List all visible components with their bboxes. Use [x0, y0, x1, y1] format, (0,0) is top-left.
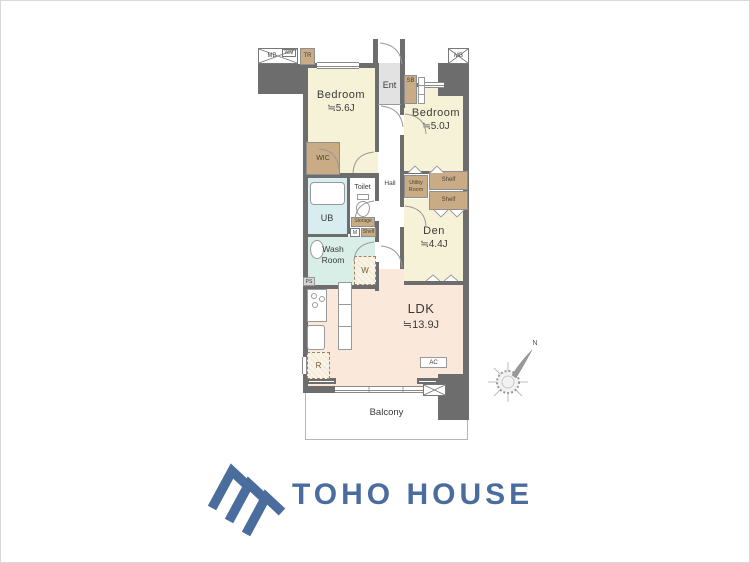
compass-needle	[512, 350, 532, 378]
door-arc-washroom	[354, 242, 374, 261]
floorplan-image: MB WM TR MB SB WIC Utility Room Shelf Sh…	[0, 0, 750, 563]
window-ticks	[369, 386, 403, 393]
toho-house-logo-text: TOHO HOUSE	[292, 478, 533, 512]
logo-chevron-3	[246, 497, 282, 534]
door-arc-den	[405, 206, 426, 226]
compass-icon	[488, 350, 532, 402]
door-arc-wic	[319, 149, 339, 169]
door-arc-bedroom2	[405, 114, 426, 134]
door-arc-bedroom1	[353, 152, 374, 173]
door-arc-entrance	[380, 43, 402, 64]
closet-door-marks	[408, 166, 464, 281]
door-arcs	[319, 43, 426, 268]
meter-box-x	[259, 49, 468, 395]
door-arc-ldk	[381, 246, 402, 268]
toho-house-logo-mark	[204, 461, 294, 551]
door-arc-ent-hall	[381, 106, 403, 127]
door-arc-toilet	[355, 201, 374, 220]
